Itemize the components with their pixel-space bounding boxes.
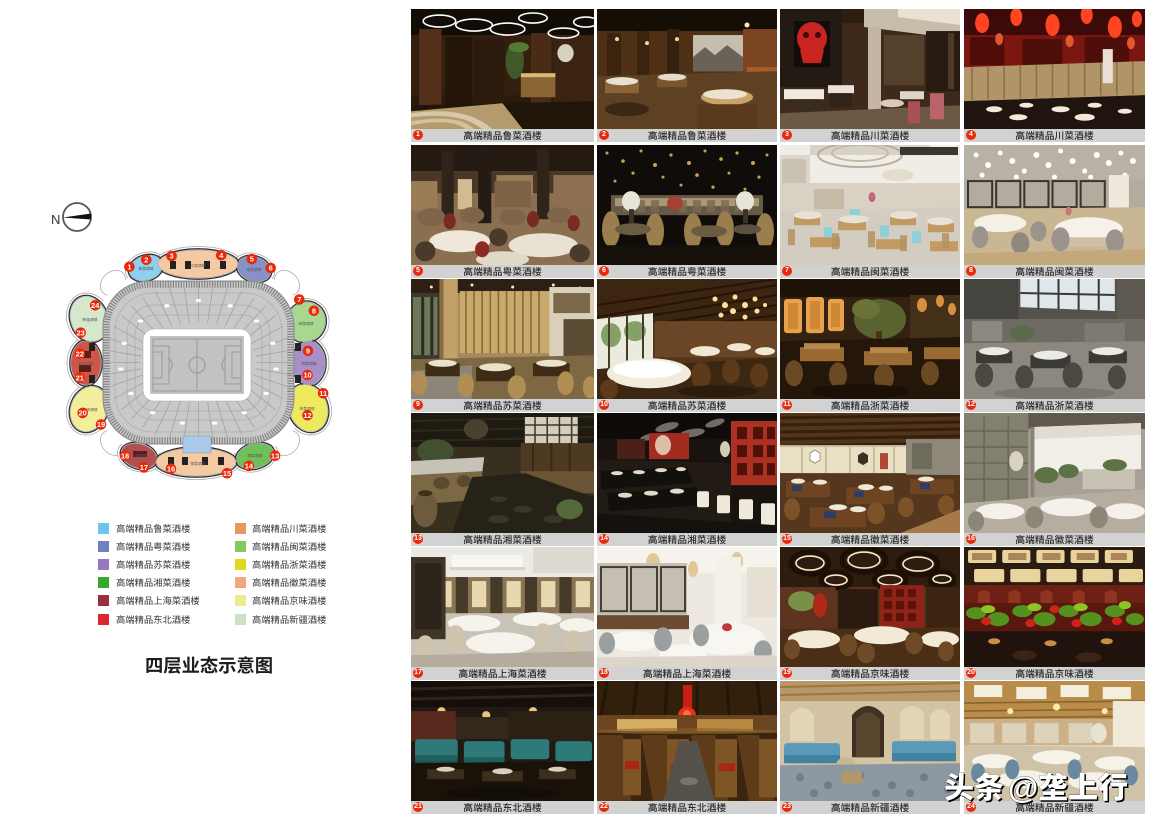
svg-text:8: 8	[312, 307, 316, 316]
svg-text:16: 16	[167, 465, 175, 474]
svg-text:@: @	[1008, 770, 1038, 805]
svg-text:N: N	[51, 212, 60, 227]
svg-text:2: 2	[144, 256, 148, 265]
svg-text:12: 12	[303, 411, 311, 420]
svg-text:3: 3	[170, 252, 174, 261]
svg-text:5: 5	[250, 255, 254, 264]
svg-text:9: 9	[306, 347, 310, 356]
svg-text:10: 10	[303, 371, 311, 380]
svg-text:14: 14	[245, 462, 254, 471]
svg-text:23: 23	[77, 328, 85, 337]
svg-text:11: 11	[319, 389, 327, 398]
svg-text:1: 1	[127, 263, 131, 272]
svg-text:19: 19	[97, 420, 105, 429]
svg-text:24: 24	[91, 301, 100, 310]
svg-text:22: 22	[76, 349, 84, 358]
svg-text:20: 20	[79, 409, 87, 418]
svg-text:17: 17	[140, 463, 148, 472]
svg-text:18: 18	[121, 451, 129, 460]
svg-text:13: 13	[271, 451, 279, 460]
svg-text:21: 21	[76, 373, 84, 382]
svg-text:6: 6	[269, 264, 273, 273]
svg-text:7: 7	[297, 295, 301, 304]
svg-text:15: 15	[223, 469, 231, 478]
